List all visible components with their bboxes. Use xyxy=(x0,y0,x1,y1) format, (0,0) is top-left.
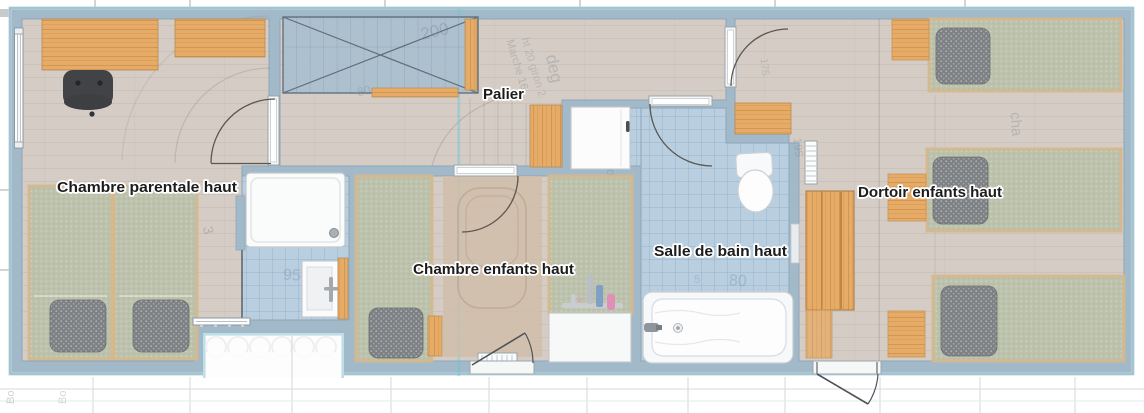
svg-text:80: 80 xyxy=(728,272,747,290)
svg-text:Chambre parentale haut: Chambre parentale haut xyxy=(57,180,237,196)
svg-text:cha: cha xyxy=(1007,112,1026,138)
svg-text:Palier: Palier xyxy=(483,87,524,103)
svg-text:175: 175 xyxy=(758,58,772,77)
svg-text:Bo: Bo xyxy=(57,391,69,404)
svg-text:195: 195 xyxy=(790,137,804,157)
svg-text:5: 5 xyxy=(694,274,700,286)
svg-text:95: 95 xyxy=(282,267,301,285)
svg-text:Dortoir enfants haut: Dortoir enfants haut xyxy=(858,185,1002,201)
svg-text:Chambre enfants haut: Chambre enfants haut xyxy=(413,262,574,278)
svg-text:Salle de bain haut: Salle de bain haut xyxy=(654,244,787,260)
svg-text:Bo: Bo xyxy=(5,391,17,404)
